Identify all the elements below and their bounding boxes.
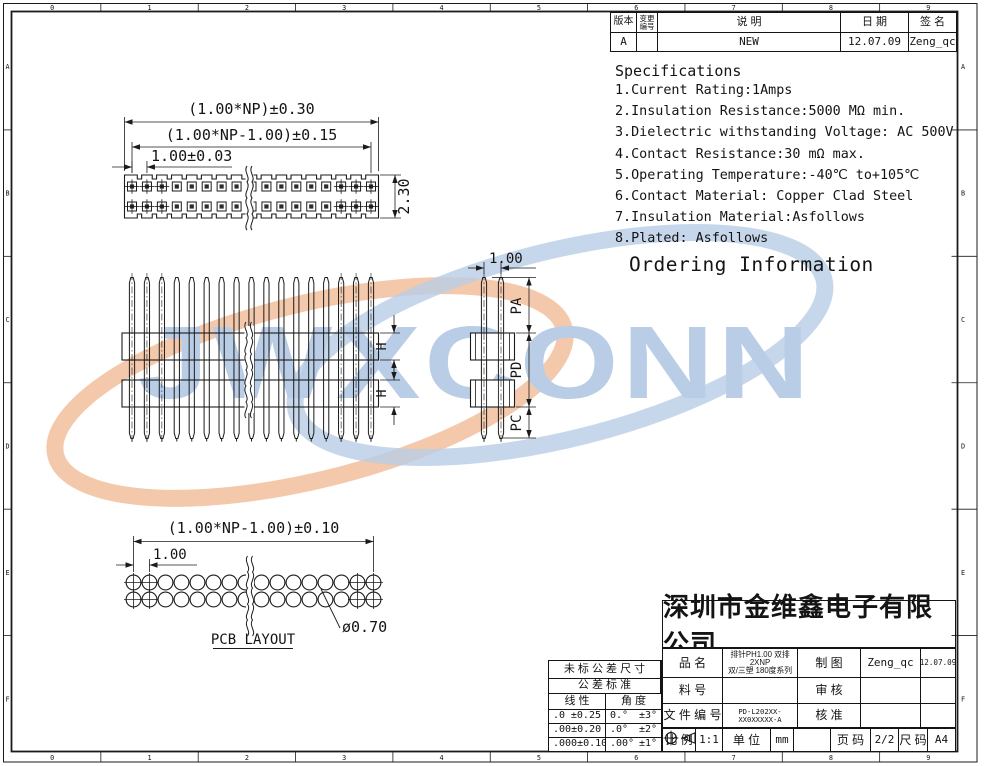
tolerance-angle-row: .00°±1° (606, 738, 661, 751)
pcb-layout: (1.00*NP-1.00)±0.101.00ø0.70PCB LAYOUT (116, 519, 387, 649)
dim-arrow (147, 164, 155, 169)
dim-arrow (363, 144, 371, 149)
pin-core (205, 204, 209, 208)
pcb-hole (318, 575, 333, 590)
dim-arrow (526, 430, 531, 438)
check-label: 审 核 (798, 678, 861, 704)
pin-core (234, 204, 238, 208)
ordering-information-title: Ordering Information (615, 253, 980, 276)
pin-body (279, 278, 284, 439)
dim-arrow (526, 278, 531, 286)
approve-by-value (861, 704, 921, 727)
rev-date: 12.07.09 (841, 33, 909, 51)
tolerance-title-1: 未 标 公 差 尺 寸 (549, 661, 661, 679)
spec-line: 5.Operating Temperature:-40℃ to+105℃ (615, 165, 980, 186)
specifications-lines: 1.Current Rating:1Amps2.Insulation Resis… (615, 80, 980, 250)
page-label: 页 码 (831, 729, 871, 751)
tol-linear-tol-1: ±0.20 (571, 725, 601, 736)
tol-linear-tol-2: ±0.10 (577, 739, 606, 750)
ruler-number-top: 5 (537, 4, 541, 12)
rev-signature: Zeng_qc (909, 33, 956, 51)
insulator-block (471, 380, 515, 407)
ruler-number-top: 9 (926, 4, 930, 12)
pin-core (324, 184, 328, 188)
tolerance-angle-row: 0.°±3° (606, 710, 661, 724)
draw-by-value: Zeng_qc (861, 649, 921, 678)
ruler-letter-left: C (5, 316, 9, 324)
scale-value: 1:1 (696, 729, 723, 751)
tolerance-title-2: 公 差 标 准 (549, 679, 661, 694)
dim-arrow (391, 372, 396, 380)
spec-line: 8.Plated: Asfollows (615, 228, 980, 249)
ruler-number-bottom: 3 (342, 754, 346, 762)
dim-arrow (526, 325, 531, 333)
approve-label: 核 准 (798, 704, 861, 727)
spec-line: 4.Contact Resistance:30 mΩ max. (615, 144, 980, 165)
dim-arrow (526, 399, 531, 407)
ruler-number-bottom: 8 (829, 754, 833, 762)
dim-arrow (132, 144, 140, 149)
pcb-hole (334, 575, 349, 590)
file-no-label: 文 件 编 号 (663, 704, 723, 727)
dim-span: (1.00*NP-1.00)±0.10 (168, 519, 340, 537)
draw-date-value: 12.07.09 (921, 649, 955, 678)
dim-arrow (366, 539, 374, 544)
pin-body (204, 278, 209, 439)
rev-header-version: 版本 (611, 13, 637, 33)
drawing-sheet: JWXCONN 00112233445566778899AABBCCDDEEFF… (0, 0, 1000, 766)
dim-arrow (391, 407, 396, 415)
ruler-letter-left: D (5, 442, 9, 450)
pcb-hole (302, 592, 317, 607)
ruler-letter-left: B (5, 190, 9, 198)
pin-core (264, 184, 268, 188)
title-block-bottom-row: 比 例 1:1 单 位 mm 页 码 2/2 尺 码 A4 (662, 728, 956, 752)
size-value: A4 (928, 729, 955, 751)
page-value: 2/2 (871, 729, 899, 751)
ruler-letter-right: D (961, 442, 965, 450)
ruler-number-top: 4 (440, 4, 444, 12)
dim-overall: (1.00*NP)±0.30 (188, 100, 314, 118)
dim-arrow (150, 562, 158, 567)
pcb-hole (222, 592, 237, 607)
ruler-letter-left: E (5, 569, 9, 577)
title-block-main: 品 名 排针PH1.00 双排 2XNP 双/三塑 180度系列 制 图 Zen… (662, 648, 956, 728)
spec-line: 7.Insulation Material:Asfollows (615, 207, 980, 228)
tolerance-linear-row: .0±0.25 (549, 710, 606, 724)
ruler-number-bottom: 4 (440, 754, 444, 762)
tol-angle-tol-0: ±3° (639, 711, 657, 722)
pin-body (264, 278, 269, 439)
tolerance-linear-row: .000±0.10 (549, 738, 606, 751)
pin-body (324, 278, 329, 439)
ruler-letter-left: F (5, 695, 9, 703)
pin-core (205, 184, 209, 188)
ruler-number-bottom: 7 (732, 754, 736, 762)
ruler-number-top: 8 (829, 4, 833, 12)
tol-angle-tol-2: ±1° (639, 739, 657, 750)
dim-arrow (126, 562, 134, 567)
ruler-number-bottom: 6 (634, 754, 638, 762)
dim-arrow (134, 539, 142, 544)
ruler-number-bottom: 5 (537, 754, 541, 762)
dim-hole: ø0.70 (342, 618, 387, 636)
spec-line: 1.Current Rating:1Amps (615, 80, 980, 101)
company-name-banner: 深圳市金维鑫电子有限公司 (662, 600, 956, 648)
pcb-hole (302, 575, 317, 590)
ruler-letter-right: E (961, 569, 965, 577)
pcb-hole (254, 592, 269, 607)
pin-core (175, 204, 179, 208)
pin-core (190, 184, 194, 188)
pin-core (309, 204, 313, 208)
pin-core (175, 184, 179, 188)
dim-h: H (375, 343, 390, 351)
ruler-number-top: 6 (634, 4, 638, 12)
pcb-hole (158, 575, 173, 590)
tolerance-table: 未 标 公 差 尺 寸 公 差 标 准 线 性 角 度 .0±0.25 0.°±… (548, 660, 662, 752)
unit-label: 单 位 (723, 729, 771, 751)
dim-pc: PC (509, 415, 525, 432)
ruler-number-top: 2 (245, 4, 249, 12)
dim-arrow (391, 325, 396, 333)
rev-description: NEW (658, 33, 841, 51)
pcb-hole (286, 575, 301, 590)
pcb-hole (174, 575, 189, 590)
pcb-hole (206, 575, 221, 590)
rev-change-no (637, 33, 658, 51)
dim-arrow (124, 164, 132, 169)
pcb-hole (286, 592, 301, 607)
pin-core (324, 204, 328, 208)
tol-angle-0: 0.° (610, 711, 628, 722)
unit-value: mm (771, 729, 794, 751)
ruler-number-bottom: 1 (147, 754, 151, 762)
pin-core (264, 204, 268, 208)
dim-arrow (476, 265, 484, 270)
ruler-number-bottom: 9 (926, 754, 930, 762)
ruler-number-top: 0 (50, 4, 54, 12)
spec-line: 6.Contact Material: Copper Clad Steel (615, 186, 980, 207)
pcb-layout-title: PCB LAYOUT (211, 632, 296, 648)
ruler-number-bottom: 0 (50, 754, 54, 762)
ruler-number-top: 3 (342, 4, 346, 12)
pin-core (190, 204, 194, 208)
tolerance-col-linear: 线 性 (549, 694, 606, 710)
pin-core (309, 184, 313, 188)
tol-angle-2: .00° (610, 739, 634, 750)
ruler-letter-left: A (5, 63, 9, 71)
pin-core (234, 184, 238, 188)
approve-date-value (921, 704, 955, 727)
pin-core (294, 204, 298, 208)
front-view: HH (122, 273, 400, 444)
part-no-label: 料 号 (663, 678, 723, 704)
part-no-value (723, 678, 798, 704)
top-view: (1.00*NP)±0.30(1.00*NP-1.00)±0.151.00±0.… (112, 100, 413, 230)
dim-inner: (1.00*NP-1.00)±0.15 (166, 126, 338, 144)
specifications-block: Specifications 1.Current Rating:1Amps2.I… (615, 62, 980, 276)
pin-core (294, 184, 298, 188)
dim-pitch: 1.00 (153, 547, 187, 563)
dim-arrow (526, 407, 531, 415)
size-label: 尺 码 (899, 729, 928, 751)
check-date-value (921, 678, 955, 704)
tol-angle-1: .0° (610, 725, 628, 736)
tol-linear-0: .0 (553, 711, 565, 722)
tol-linear-tol-0: ±0.25 (571, 711, 601, 722)
tol-linear-1: .00 (553, 725, 571, 736)
pin-body (174, 278, 179, 439)
tol-angle-tol-1: ±2° (639, 725, 657, 736)
dim-pitch: 1.00±0.03 (151, 147, 232, 165)
dim-h: H (375, 390, 390, 398)
dim-height: 2.30 (395, 178, 413, 214)
part-name-value: 排针PH1.00 双排 2XNP 双/三塑 180度系列 (723, 649, 798, 678)
pin-core (220, 204, 224, 208)
pcb-hole (270, 575, 285, 590)
ruler-letter-right: F (961, 695, 965, 703)
tolerance-linear-row: .00±0.20 (549, 724, 606, 738)
spec-line: 2.Insulation Resistance:5000 MΩ min. (615, 101, 980, 122)
ruler-number-top: 1 (147, 4, 151, 12)
part-name-label: 品 名 (663, 649, 723, 678)
rev-header-signature: 签 名 (909, 13, 956, 33)
ruler-number-top: 7 (732, 4, 736, 12)
dim-arrow (125, 119, 133, 124)
pin-core (279, 184, 283, 188)
pcb-hole (318, 592, 333, 607)
pin-body (189, 278, 194, 439)
file-no-value: PD-L202XX-XX0XXXXX-A (723, 704, 798, 727)
pin-body (234, 278, 239, 439)
tolerance-angle-row: .0°±2° (606, 724, 661, 738)
pcb-hole (254, 575, 269, 590)
pin-body (219, 278, 224, 439)
dim-pa: PA (509, 297, 525, 314)
dim-pitch: 1.00 (489, 251, 523, 267)
pcb-hole (222, 575, 237, 590)
revision-table: 版本 变更 编号 说 明 日 期 签 名 A NEW 12.07.09 Zeng… (610, 12, 957, 52)
pin-core (279, 204, 283, 208)
spec-line: 3.Dielectric withstanding Voltage: AC 50… (615, 122, 980, 143)
dim-pd: PD (509, 362, 525, 379)
tol-linear-2: .000 (553, 739, 577, 750)
pcb-hole (270, 592, 285, 607)
draw-label: 制 图 (798, 649, 861, 678)
pcb-hole (174, 592, 189, 607)
pcb-hole (334, 592, 349, 607)
insulator-block (471, 333, 515, 360)
side-view: 1.00PAPDPC (468, 251, 536, 444)
tolerance-col-angle: 角 度 (606, 694, 661, 710)
dim-arrow (371, 119, 379, 124)
pcb-hole (206, 592, 221, 607)
rev-version: A (611, 33, 637, 51)
check-by-value (861, 678, 921, 704)
ruler-letter-right: C (961, 316, 965, 324)
pin-core (220, 184, 224, 188)
pin-body (309, 278, 314, 439)
dim-arrow (526, 333, 531, 341)
pcb-hole (158, 592, 173, 607)
specifications-title: Specifications (615, 62, 980, 80)
ruler-number-bottom: 2 (245, 754, 249, 762)
rev-header-change-no: 变更 编号 (637, 13, 658, 33)
third-angle-projection-icon (794, 729, 831, 751)
rev-header-date: 日 期 (841, 13, 909, 33)
pin-body (294, 278, 299, 439)
pcb-hole (190, 592, 205, 607)
pcb-hole (190, 575, 205, 590)
rev-header-description: 说 明 (658, 13, 841, 33)
